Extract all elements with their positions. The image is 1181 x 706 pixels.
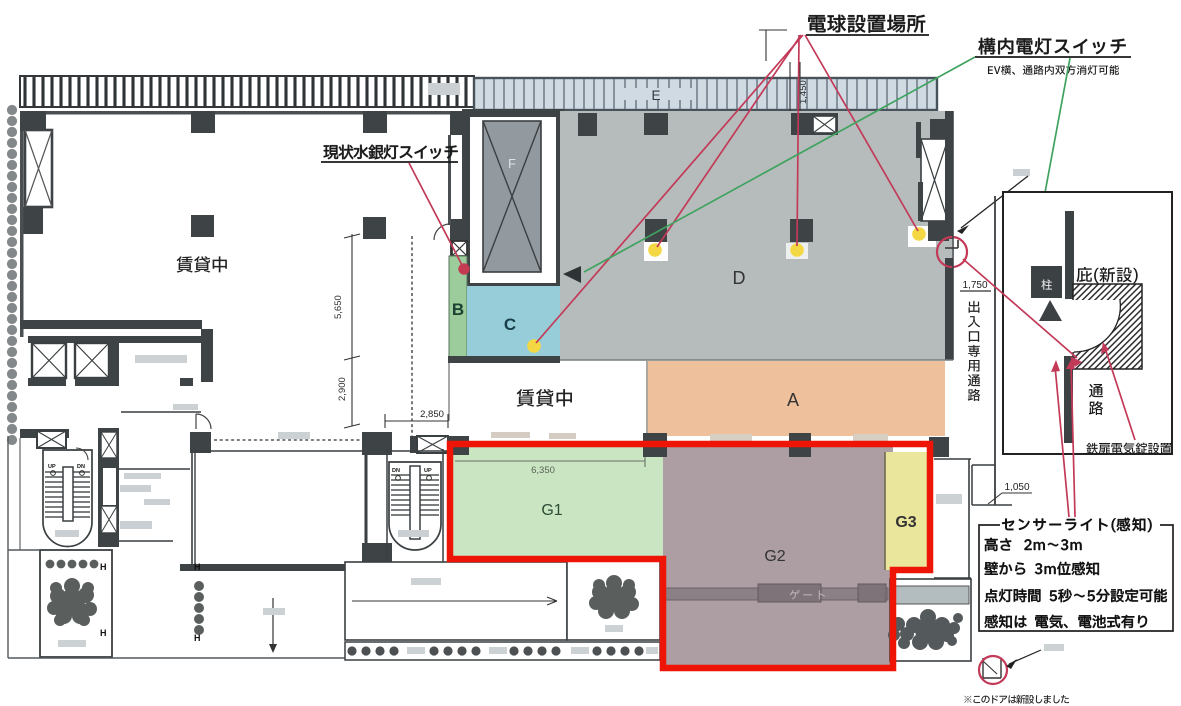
svg-text:6,350: 6,350	[531, 465, 555, 476]
svg-text:1,750: 1,750	[962, 280, 987, 291]
svg-text:E: E	[651, 88, 660, 103]
svg-text:G3: G3	[895, 514, 916, 531]
svg-text:DN: DN	[77, 464, 85, 470]
svg-text:C: C	[504, 315, 516, 334]
svg-text:D: D	[733, 268, 746, 288]
svg-text:2,900: 2,900	[337, 377, 348, 401]
svg-text:UP: UP	[48, 464, 56, 470]
svg-text:G1: G1	[541, 502, 562, 519]
svg-text:DN: DN	[392, 468, 400, 474]
svg-text:A: A	[787, 390, 799, 410]
svg-text:F: F	[508, 156, 516, 171]
svg-text:H: H	[100, 628, 107, 638]
svg-text:B: B	[452, 300, 464, 319]
svg-text:G2: G2	[764, 548, 785, 565]
svg-text:H: H	[194, 562, 201, 572]
svg-text:UP: UP	[424, 468, 432, 474]
svg-text:2,850: 2,850	[420, 409, 444, 420]
svg-text:1,050: 1,050	[1004, 482, 1029, 493]
svg-text:1,450: 1,450	[798, 80, 809, 104]
svg-text:H: H	[100, 562, 107, 572]
svg-text:5,650: 5,650	[333, 295, 344, 319]
svg-text:H: H	[194, 633, 201, 643]
